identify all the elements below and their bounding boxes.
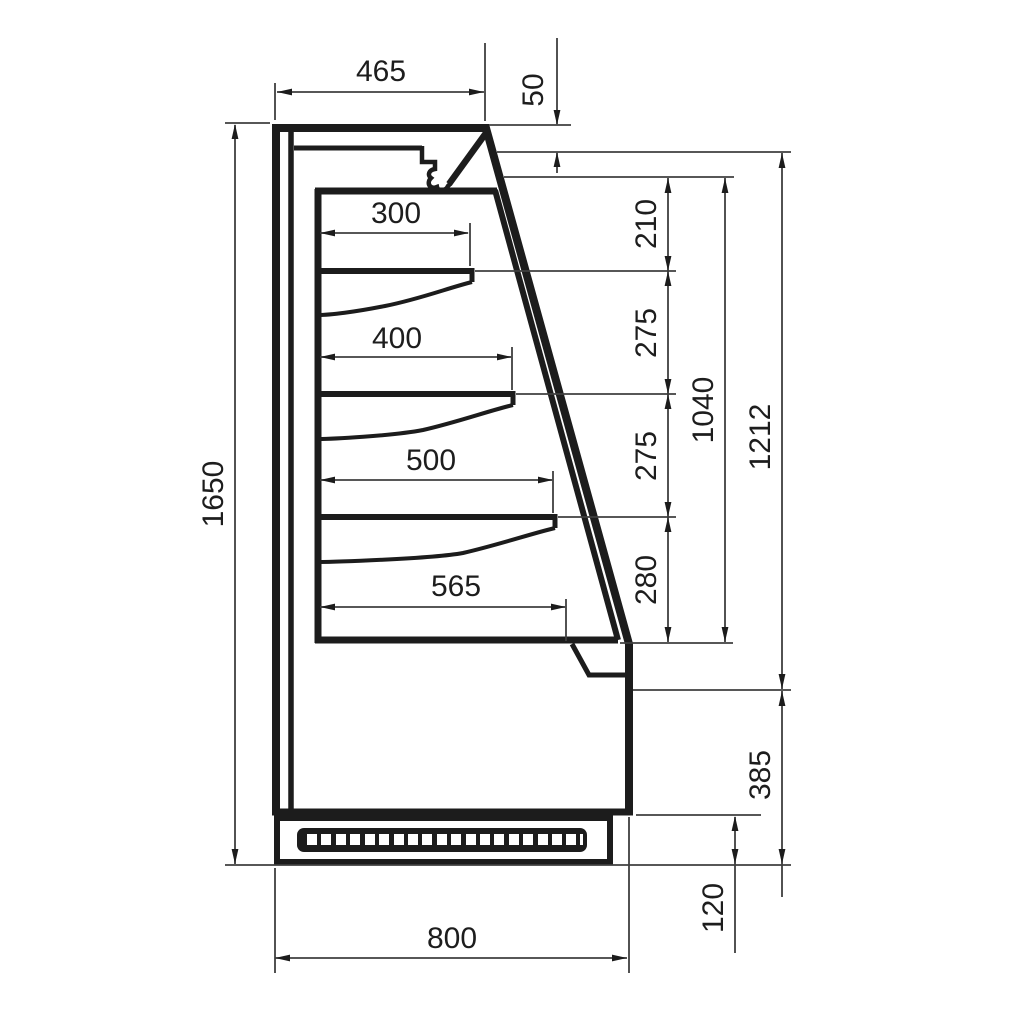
dim-shelf1-depth: 300 (371, 197, 421, 230)
dim-lower-front-height: 385 (744, 750, 777, 800)
dim-gap-shelf2-shelf3: 275 (630, 431, 663, 481)
shelf-3 (318, 514, 555, 562)
dim-shelf3-depth: 500 (406, 444, 456, 477)
dim-canopy-drop: 50 (517, 73, 550, 106)
dim-deck-depth: 565 (431, 570, 481, 603)
canopy-lamp-profile (422, 146, 451, 190)
dim-top-depth: 465 (356, 55, 406, 88)
dim-gap-shelf3-deck: 280 (630, 555, 663, 605)
technical-drawing: 465 50 300 400 500 565 210 275 275 280 1… (0, 0, 1024, 1024)
dim-shelf2-depth: 400 (372, 322, 422, 355)
dim-gap-ceiling-shelf1: 210 (630, 199, 663, 249)
deck-front-step (572, 644, 630, 675)
shelf-2 (318, 391, 513, 439)
dim-overall-height: 1650 (197, 461, 230, 528)
display-case-section-svg: 465 50 300 400 500 565 210 275 275 280 1… (0, 0, 1024, 1024)
dim-opening-height: 1040 (687, 377, 720, 444)
cabinet-structure (272, 128, 633, 862)
shelf-1 (318, 268, 472, 315)
glass-front-inner-line (495, 190, 618, 640)
dim-gap-shelf1-shelf2: 275 (630, 308, 663, 358)
canopy-front-diagonal (449, 133, 486, 184)
dim-overall-depth: 800 (427, 922, 477, 955)
dim-front-height: 1212 (744, 404, 777, 471)
dim-plinth-height: 120 (697, 883, 730, 933)
